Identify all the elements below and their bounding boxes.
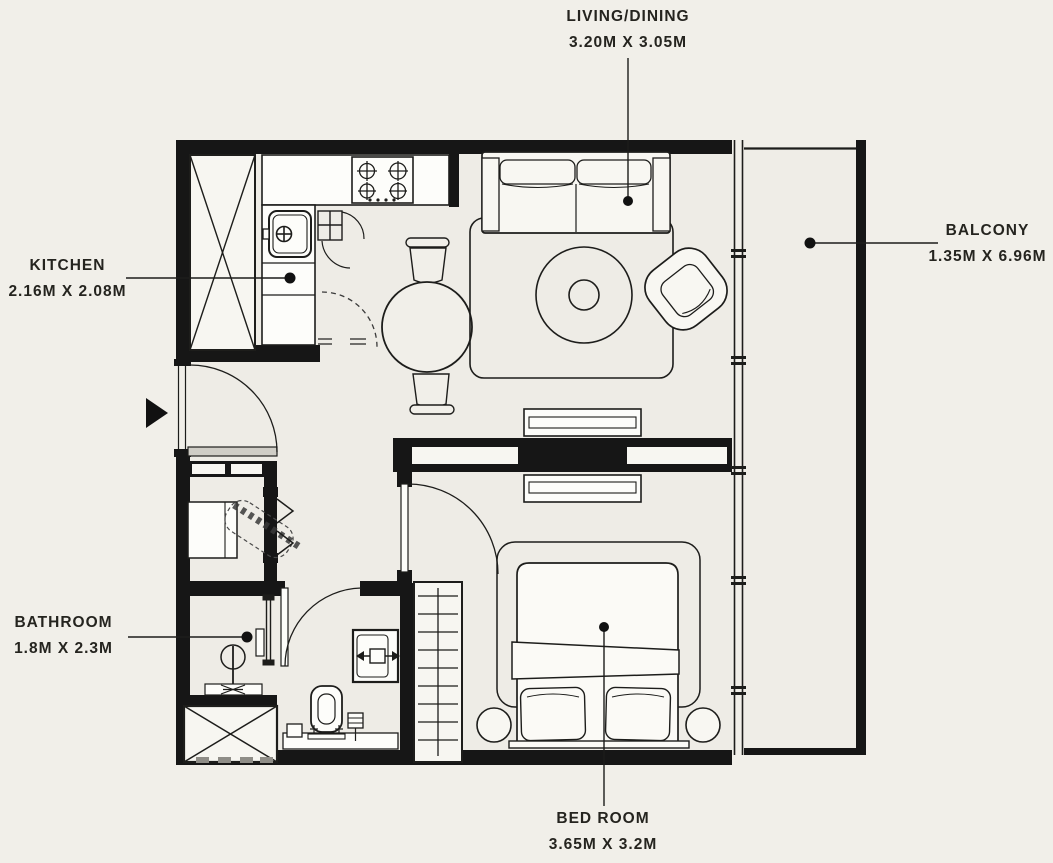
dining-chair-bottom [410,374,454,414]
room-name: LIVING/DINING [498,4,758,30]
service-shaft-bottom [184,706,277,763]
room-label-bathroom: BATHROOM 1.8M X 2.3M [0,610,127,662]
room-label-kitchen: KITCHEN 2.16M X 2.08M [0,253,135,305]
entrance-arrow [146,398,168,428]
sofa-2-seat [482,152,670,233]
room-dimensions: 3.20M X 3.05M [498,30,758,56]
room-name: KITCHEN [0,253,135,279]
room-label-bed-room: BED ROOM 3.65M X 3.2M [478,806,728,858]
room-dimensions: 2.16M X 2.08M [0,279,135,305]
room-dimensions: 1.35M X 6.96M [922,244,1053,270]
room-label-living-dining: LIVING/DINING 3.20M X 3.05M [498,4,758,56]
service-shaft-kitchen [190,155,255,350]
bed-base [509,741,689,748]
room-name: BED ROOM [478,806,728,832]
room-dimensions: 3.65M X 3.2M [478,832,728,858]
floor-plan-drawing [0,0,1053,863]
floor-plan: LIVING/DINING 3.20M X 3.05M KITCHEN 2.16… [0,0,1053,863]
nightstand-right [686,708,720,742]
room-label-balcony: BALCONY 1.35M X 6.96M [922,218,1053,270]
nightstand-left [477,708,511,742]
room-name: BATHROOM [0,610,127,636]
wardrobe [414,582,462,762]
dining-table [382,282,472,372]
room-name: BALCONY [922,218,1053,244]
toilet-side-box [287,724,302,737]
kitchen-sink [263,211,311,257]
double-bed [509,563,689,748]
stove-4-burner [352,157,413,203]
washbasin [353,630,400,682]
room-dimensions: 1.8M X 2.3M [0,636,127,662]
